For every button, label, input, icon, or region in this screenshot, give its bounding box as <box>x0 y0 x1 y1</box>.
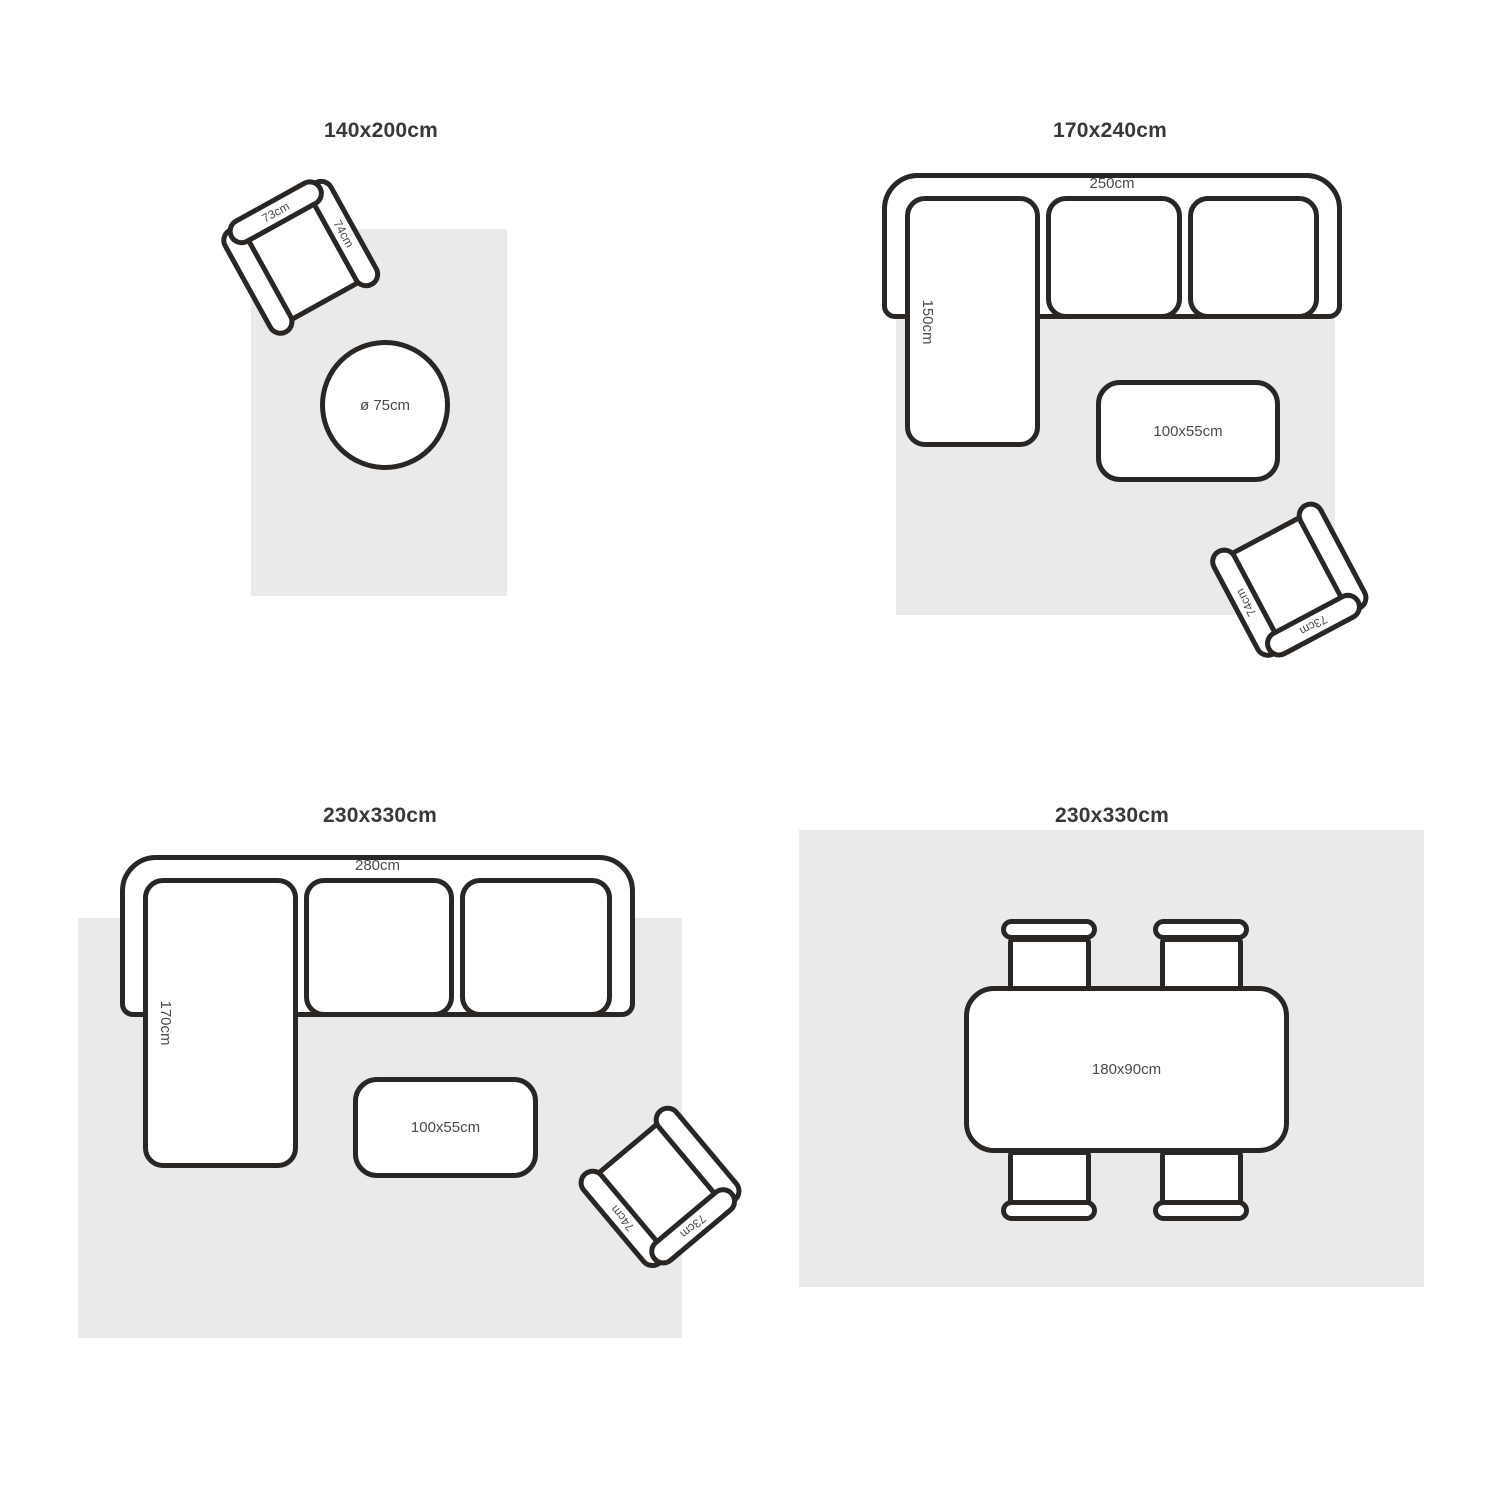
sofa-chaise-cushion: 150cm <box>905 196 1040 447</box>
dining-table-label: 180x90cm <box>1092 1061 1161 1078</box>
dining-chair-seat <box>1160 1150 1243 1205</box>
sofa-chaise-depth-label: 150cm <box>919 299 936 344</box>
rug-size-guide-diagram: 140x200cm 74cm 73cm ø 75cm 170x240cm 150… <box>0 0 1500 1500</box>
armchair-arm-label: 74cm <box>330 217 356 249</box>
sofa-cushion-right <box>1188 196 1319 319</box>
panel-title: 170x240cm <box>960 119 1260 143</box>
dining-chair-back <box>1153 1200 1249 1221</box>
panel-title: 230x330cm <box>230 804 530 828</box>
round-table-label: ø 75cm <box>360 397 410 414</box>
coffee-table-label: 100x55cm <box>411 1119 480 1136</box>
round-side-table: ø 75cm <box>320 340 450 470</box>
sofa-chaise-depth-label: 170cm <box>157 1000 174 1045</box>
dining-chair-back <box>1001 919 1097 940</box>
dining-chair-back <box>1153 919 1249 940</box>
sofa-cushion-middle <box>1046 196 1182 319</box>
panel-title: 230x330cm <box>962 804 1262 828</box>
dining-chair-back <box>1001 1200 1097 1221</box>
dining-chair-seat <box>1008 937 1091 992</box>
sofa-chaise-cushion: 170cm <box>143 878 298 1168</box>
armchair-back-label: 73cm <box>260 199 292 225</box>
sofa-width-label: 280cm <box>120 857 635 874</box>
dining-table: 180x90cm <box>964 986 1289 1153</box>
sofa-cushion-middle <box>304 878 454 1017</box>
armchair-arm-label: 74cm <box>1233 586 1259 618</box>
dining-chair-seat <box>1008 1150 1091 1205</box>
coffee-table: 100x55cm <box>353 1077 538 1178</box>
panel-title: 140x200cm <box>231 119 531 143</box>
coffee-table-label: 100x55cm <box>1153 423 1222 440</box>
sofa-cushion-right <box>460 878 612 1017</box>
armchair-back-label: 73cm <box>677 1212 708 1242</box>
dining-chair-seat <box>1160 937 1243 992</box>
armchair-back-label: 73cm <box>1297 612 1329 638</box>
coffee-table: 100x55cm <box>1096 380 1280 482</box>
sofa-width-label: 250cm <box>882 175 1342 192</box>
